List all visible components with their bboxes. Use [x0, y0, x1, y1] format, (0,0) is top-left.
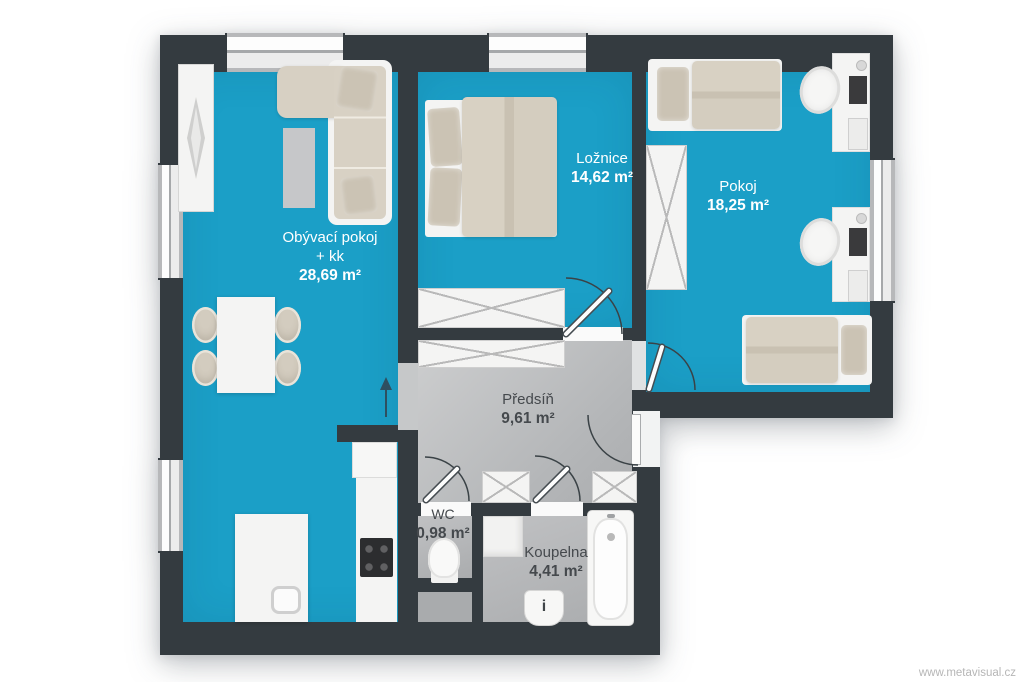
room-area: 9,61 m²: [468, 409, 588, 429]
desk-lamp: [856, 213, 867, 224]
bed-duvet-bottom: [746, 317, 838, 383]
bedroom-door-opening: [563, 327, 623, 341]
dining-chair: [274, 307, 301, 343]
bed-pillow: [841, 325, 867, 375]
tall-cabinet: [178, 64, 214, 212]
bathtub-drain: [607, 533, 615, 541]
room-name: Koupelna: [496, 543, 616, 562]
room-area: 28,69 m²: [255, 266, 405, 286]
bathroom-door-opening: [531, 502, 583, 516]
bathroom-sink: i: [524, 590, 564, 626]
monitor: [849, 228, 867, 256]
apartment: i Obývací pokoj + kk: [0, 0, 1024, 682]
pc-tower: [848, 118, 868, 150]
label-hallway: Předsíň 9,61 m²: [468, 390, 588, 429]
dining-table: [217, 297, 275, 393]
desk-lamp: [856, 60, 867, 71]
room-area: 0,98 m²: [408, 524, 478, 544]
room-name: Předsíň: [468, 390, 588, 409]
room-name: WC: [408, 506, 478, 524]
room-name: Pokoj: [678, 177, 798, 196]
wc-niche-floor: [418, 592, 472, 622]
kitchen-island: [235, 514, 308, 622]
kids-room-door-opening: [632, 341, 646, 390]
bed-duvet-top: [692, 61, 780, 129]
pc-tower: [848, 270, 868, 302]
label-bathroom: Koupelna 4,41 m²: [496, 543, 616, 582]
room-area: 14,62 m²: [540, 168, 664, 188]
sink-tap-mark: i: [542, 598, 546, 615]
toilet-bowl: [428, 538, 460, 578]
bathtub-faucet: [607, 514, 615, 518]
label-kids-room: Pokoj 18,25 m²: [678, 177, 798, 216]
label-living-room: Obývací pokoj + kk 28,69 m²: [255, 228, 405, 286]
hallway-living-passage: [398, 363, 418, 430]
cooktop: [360, 538, 393, 577]
sofa-pillow-bottom: [340, 174, 378, 216]
hall-cabinet-left: [482, 471, 530, 503]
bedroom-wardrobe: [418, 288, 565, 328]
entry-door-leaf: [631, 414, 641, 465]
room-name: Obývací pokoj: [255, 228, 405, 247]
kitchen-wall-stub: [337, 425, 398, 442]
room-area: 18,25 m²: [678, 196, 798, 216]
bed-pillow: [657, 67, 689, 121]
sofa-pillow-top: [335, 65, 379, 112]
cabinet-handle-decor: [187, 97, 205, 179]
island-sink: [271, 586, 301, 614]
room-name: Ložnice: [540, 149, 664, 168]
label-wc: WC 0,98 m²: [408, 506, 478, 544]
window-kids-room-right: [870, 158, 895, 303]
dining-chair: [192, 307, 219, 343]
side-table: [283, 128, 315, 208]
cabinet-handle-inner: [191, 107, 201, 169]
window-living-room-left-lower: [158, 458, 183, 553]
watermark: www.metavisual.cz: [919, 667, 1016, 679]
monitor: [849, 76, 867, 104]
label-bedroom: Ložnice 14,62 m²: [540, 149, 664, 188]
dining-chair: [274, 350, 301, 386]
dining-chair: [192, 350, 219, 386]
hallway-wardrobe: [418, 340, 565, 368]
floor-plan: i Obývací pokoj + kk: [0, 0, 1024, 682]
hall-cabinet-right: [592, 471, 637, 503]
window-bedroom-top: [487, 33, 588, 72]
room-area: 4,41 m²: [496, 562, 616, 582]
bed-pillow: [428, 167, 463, 227]
fridge: [352, 442, 397, 478]
room-name-suffix: + kk: [255, 247, 405, 266]
bed-pillow: [427, 107, 463, 167]
